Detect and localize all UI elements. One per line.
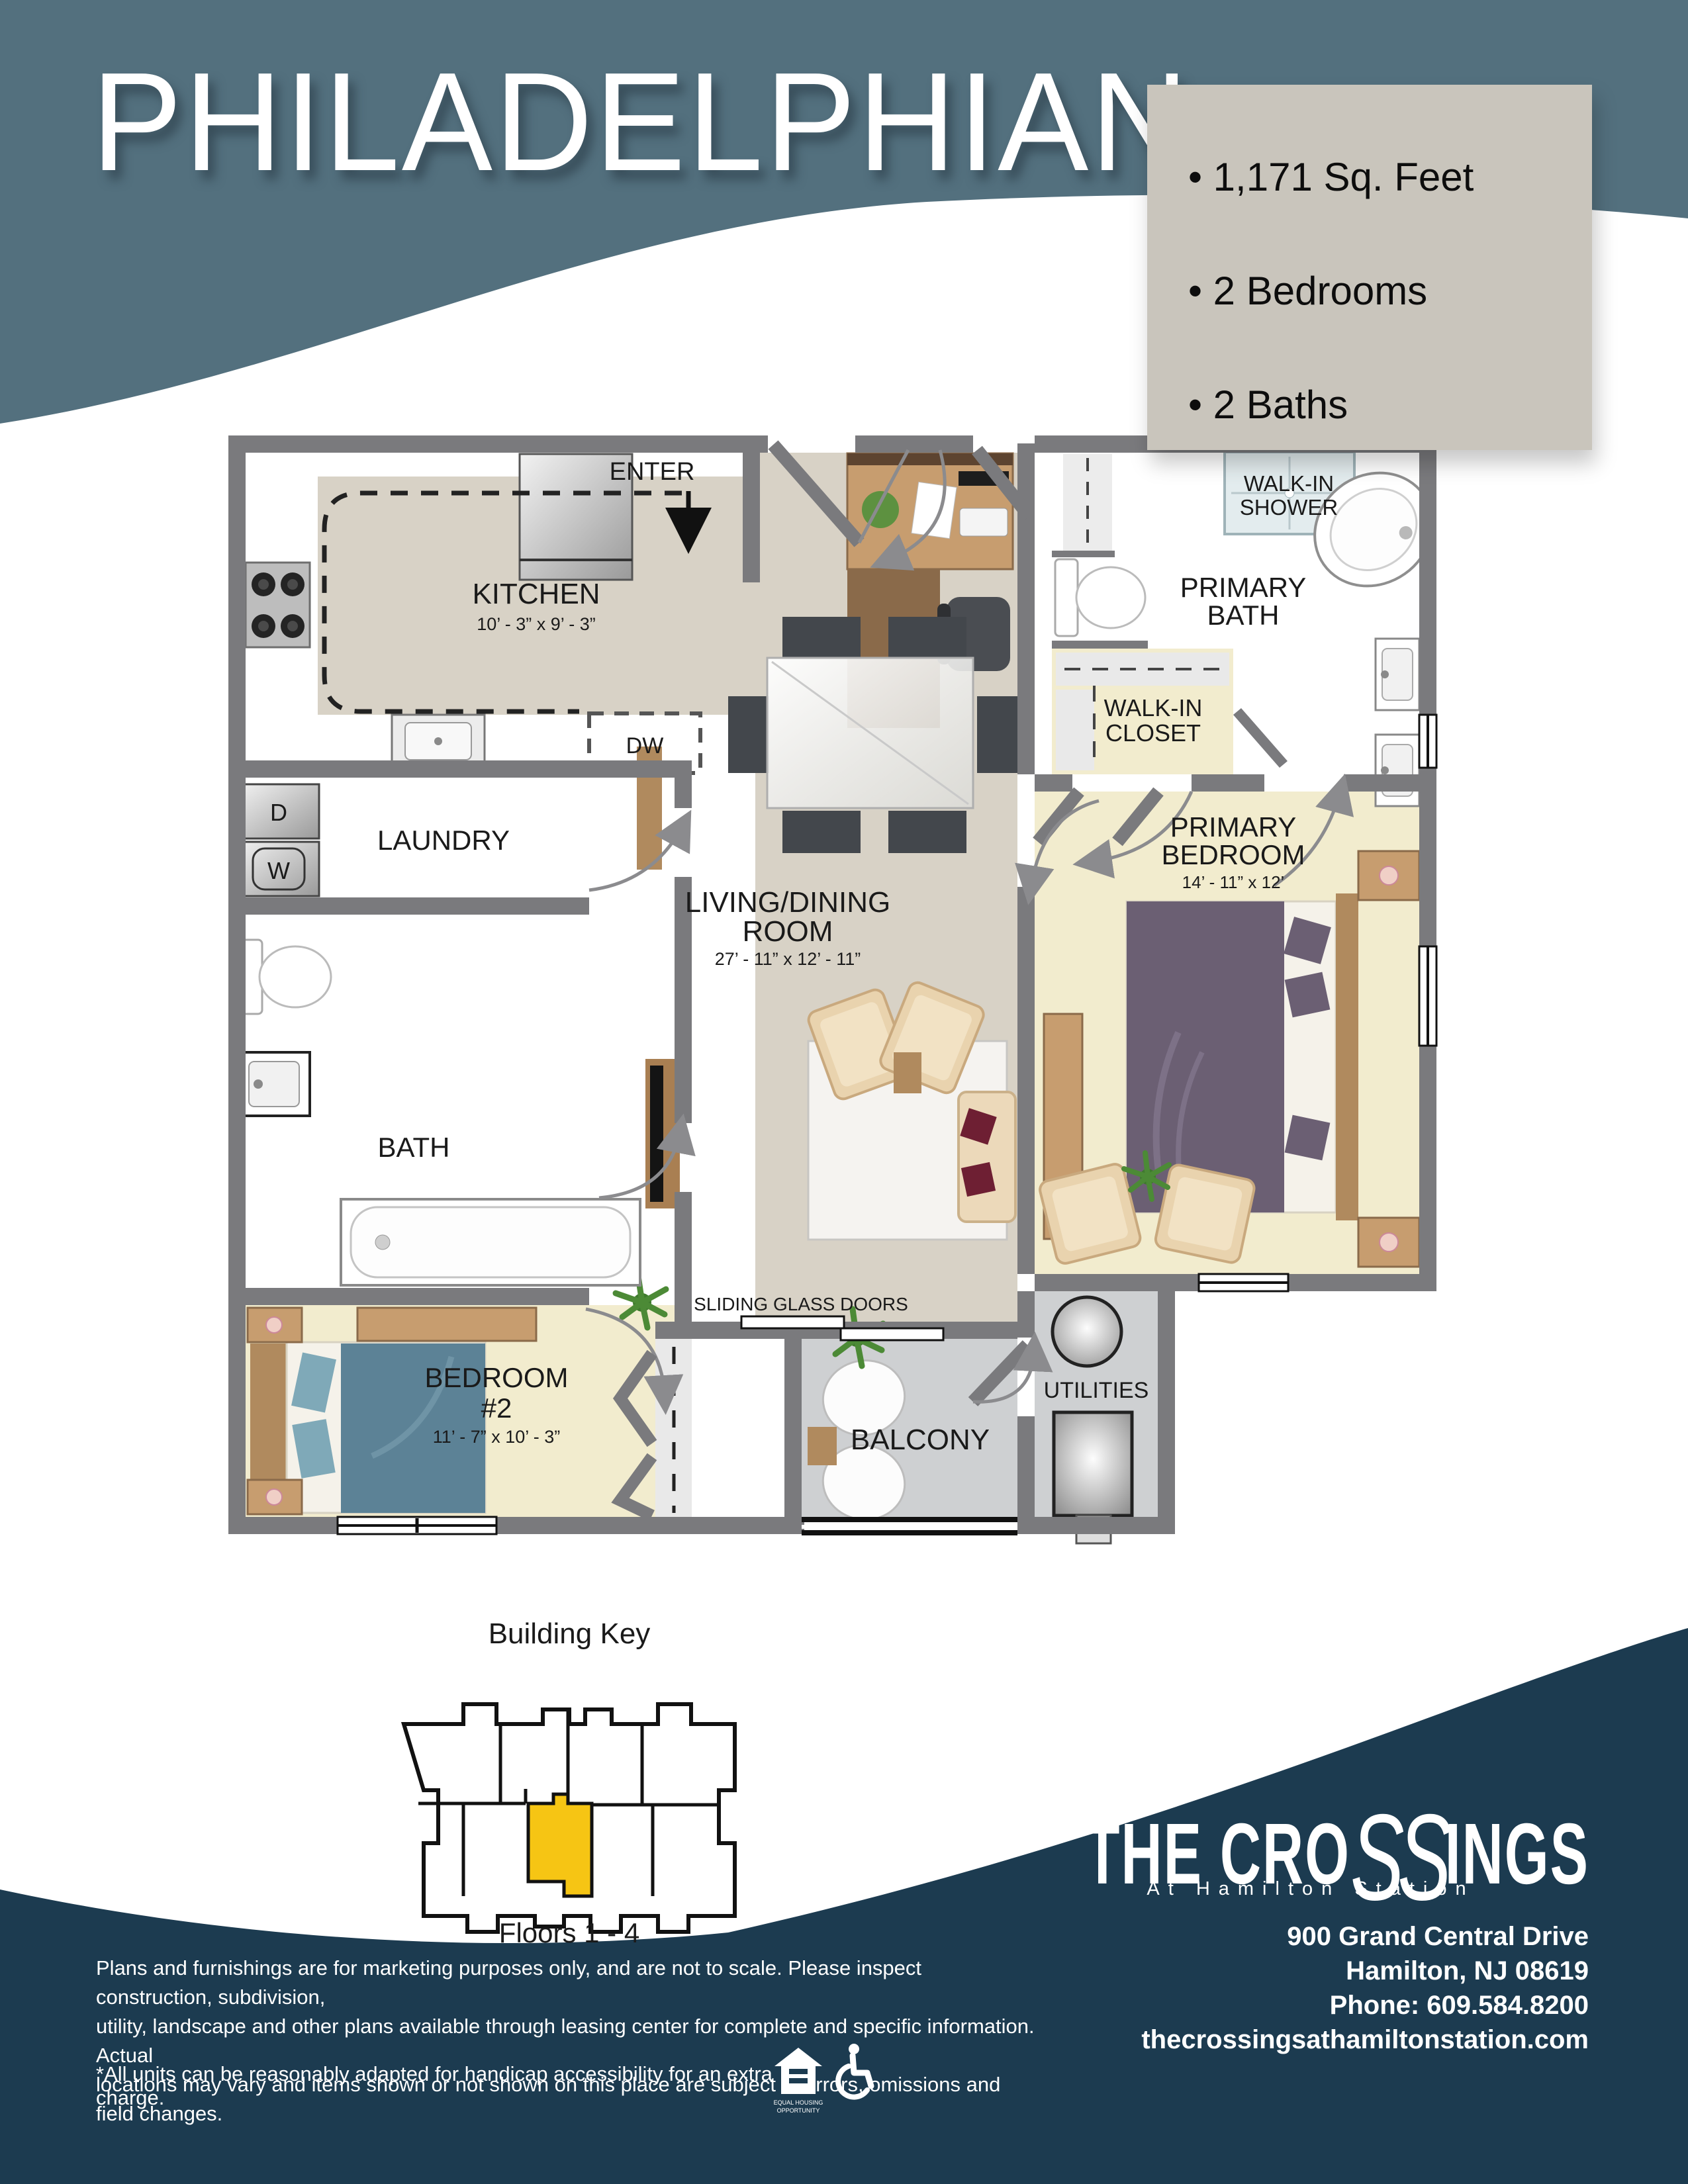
vanity-sink-2 (1376, 735, 1419, 806)
building-key-caption: Floors 1 - 4 (499, 1917, 639, 1948)
dw-label: DW (626, 733, 664, 758)
stats-box: • 1,171 Sq. Feet • 2 Bedrooms • 2 Baths (1147, 85, 1592, 450)
bed2-dresser (357, 1308, 536, 1341)
bathtub (341, 1199, 640, 1285)
stat-bedrooms: • 2 Bedrooms (1188, 268, 1592, 314)
kitchen-label: KITCHEN (472, 578, 600, 610)
primary-bath-label-1: PRIMARY (1180, 572, 1307, 603)
stat-sqfeet: • 1,171 Sq. Feet (1188, 154, 1592, 200)
primary-bedroom-dims: 14’ - 11” x 12’ (1182, 872, 1285, 892)
side-table (894, 1052, 921, 1093)
equal-housing-icon: EQUAL HOUSING OPPORTUNITY (773, 2046, 823, 2115)
kitchen-dims: 10’ - 3” x 9’ - 3” (477, 614, 596, 634)
water-heater (1054, 1412, 1132, 1516)
eho-caption-2: OPPORTUNITY (777, 2107, 820, 2114)
bedroom2-label-2: #2 (481, 1392, 512, 1424)
bed2-nightstand-2 (248, 1480, 302, 1514)
desk-plant (862, 491, 899, 528)
vanity-sink-1 (1376, 639, 1419, 710)
highlighted-unit (528, 1794, 592, 1896)
kitchen-sink (392, 715, 485, 768)
brand-tagline: At Hamilton Station (1079, 1878, 1542, 1900)
address-line-2: Hamilton, NJ 08619 (1033, 1954, 1589, 1988)
primary-bedroom-label-2: BEDROOM (1161, 839, 1305, 870)
enter-label: ENTER (610, 458, 695, 486)
washer-label: W (267, 857, 290, 884)
flyer-page: PHILADELPHIAN • 1,171 Sq. Feet • 2 Bedro… (0, 0, 1688, 2184)
primary-bedroom-label-1: PRIMARY (1170, 811, 1297, 842)
living-dims: 27’ - 11” x 12’ - 11” (715, 949, 861, 969)
accessibility-note: *All units can be reasonably adapted for… (96, 2062, 784, 2110)
closet-shelf-top (1056, 653, 1229, 686)
laundry-label: LAUNDRY (377, 825, 510, 856)
utilities-label: UTILITIES (1044, 1378, 1149, 1403)
primary-bath-label-2: BATH (1207, 600, 1280, 631)
bedroom2-label-1: BEDROOM (424, 1362, 568, 1393)
utility-tank (1053, 1297, 1121, 1366)
balcony-label: BALCONY (851, 1424, 990, 1456)
brand-logo: THE CROSSINGS (1079, 1787, 1595, 1928)
handicap-accessible-icon (829, 2042, 875, 2102)
disclaimer-line-1: Plans and furnishings are for marketing … (96, 1954, 1043, 2012)
balcony-railing (802, 1517, 1017, 1535)
balcony-table (808, 1427, 837, 1465)
living-label-1: LIVING/DINING (685, 886, 891, 919)
nightstand-1 (1358, 851, 1419, 900)
logo-part-2: SS (1350, 1789, 1445, 1926)
address-block: 900 Grand Central Drive Hamilton, NJ 086… (1033, 1919, 1589, 2057)
sliding-doors-label: SLIDING GLASS DOORS (694, 1294, 908, 1314)
floor-plan: KITCHEN 10’ - 3” x 9’ - 3” ENTER DW D W … (218, 430, 1450, 1555)
stove (246, 563, 310, 647)
living-label-2: ROOM (743, 915, 833, 948)
shower-label-1: WALK-IN (1244, 471, 1334, 496)
stat-baths: • 2 Baths (1188, 382, 1592, 428)
address-line-4: thecrossingsathamiltonstation.com (1033, 2023, 1589, 2057)
bath-sink (238, 1052, 310, 1116)
bath-label: BATH (378, 1132, 450, 1163)
bedroom-chair-2 (1154, 1163, 1256, 1264)
building-key-title: Building Key (489, 1617, 651, 1650)
closet-shelf-left (1056, 690, 1094, 770)
address-line-3: Phone: 609.584.8200 (1033, 1988, 1589, 2023)
bedroom2-dims: 11’ - 7” x 10’ - 3” (433, 1427, 561, 1447)
address-line-1: 900 Grand Central Drive (1033, 1919, 1589, 1954)
shower-label-2: SHOWER (1240, 495, 1338, 520)
bed2-nightstand-1 (248, 1308, 302, 1342)
dryer-label: D (270, 799, 287, 826)
nightstand-2 (1358, 1218, 1419, 1267)
eho-caption-1: EQUAL HOUSING (774, 2099, 823, 2106)
page-title: PHILADELPHIAN (91, 41, 1191, 203)
building-key: Building Key Floors 1 - 4 (357, 1585, 781, 1956)
disclaimer-line-2: utility, landscape and other plans avail… (96, 2012, 1043, 2070)
sofa (959, 1092, 1015, 1222)
closet-label-1: WALK-IN (1104, 694, 1203, 721)
closet-label-2: CLOSET (1105, 719, 1201, 747)
